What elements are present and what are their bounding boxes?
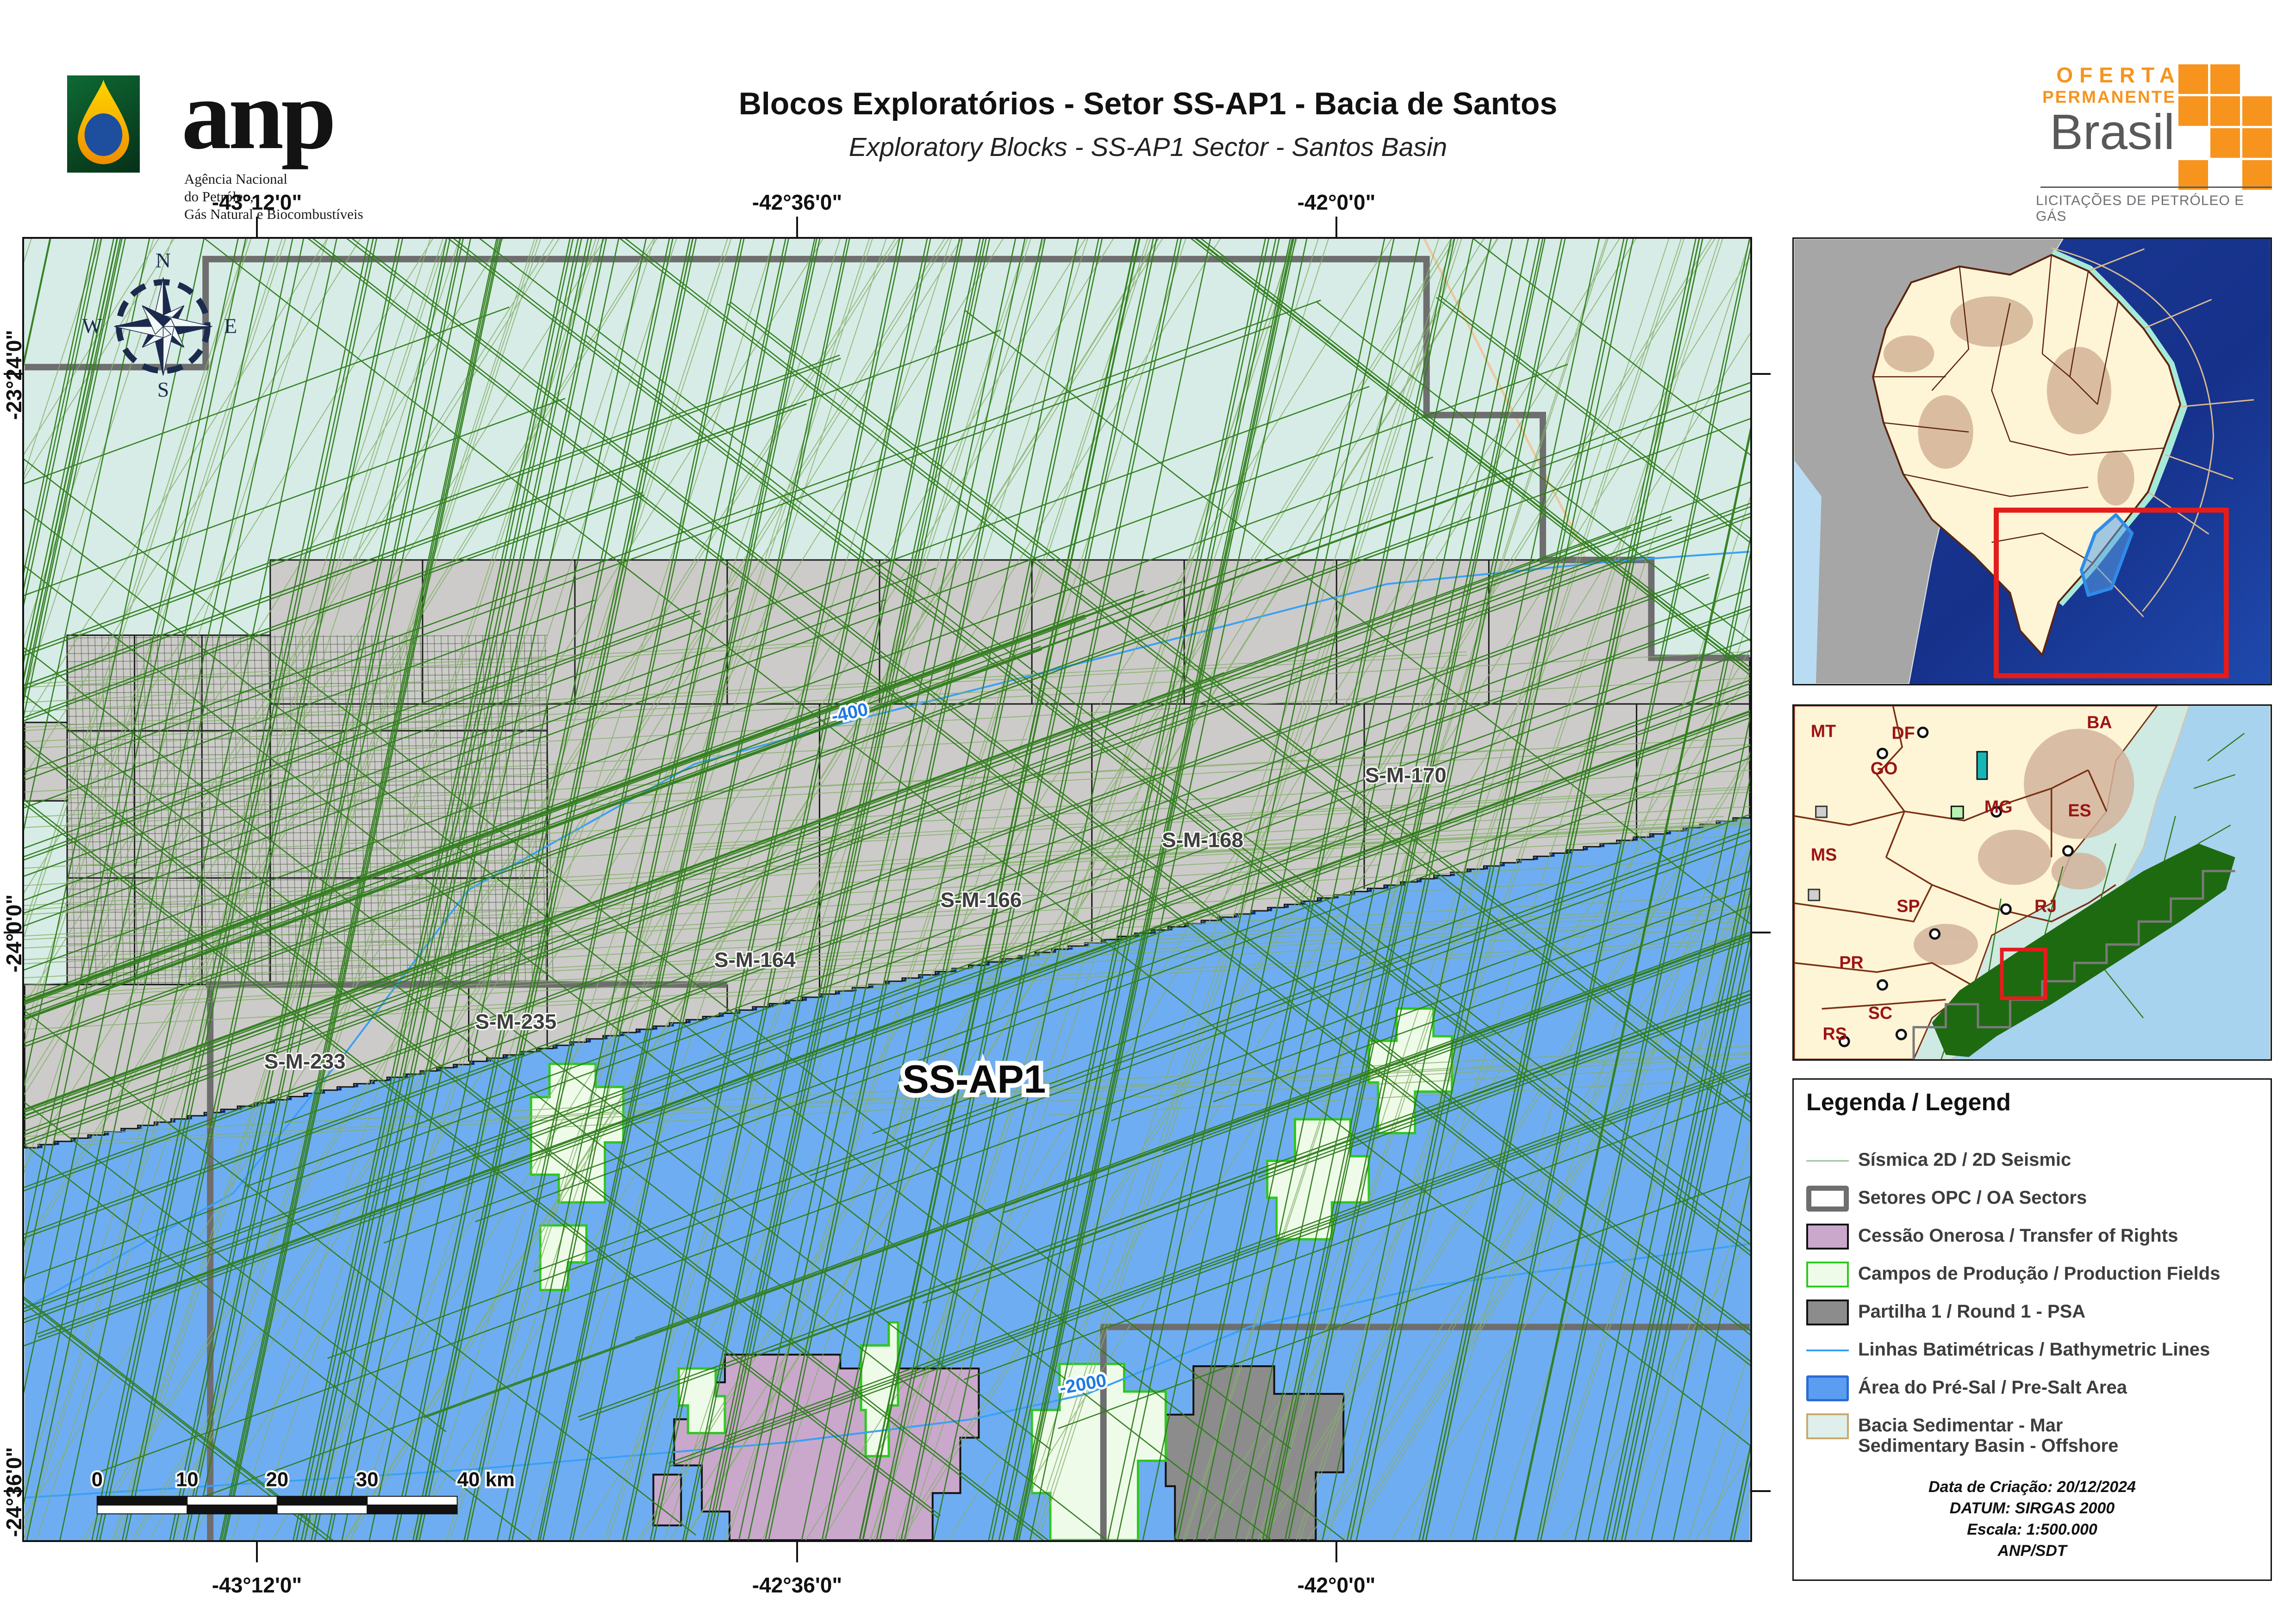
transfer-of-rights-area [653,1474,681,1525]
info-line: ANP/SDT [1806,1540,2258,1561]
longitude-label: -42°0'0" [1244,190,1429,215]
anp-agency-line1: Agência Nacional [184,170,363,188]
rect-presalt-swatch [1806,1375,1849,1401]
legend-item-label: Bacia Sedimentar - MarSedimentary Basin … [1858,1415,2118,1456]
legend-item-label: Cessão Onerosa / Transfer of Rights [1858,1225,2178,1246]
longitude-label: -42°0'0" [1244,1573,1429,1598]
longitude-label: -43°12'0" [164,1573,349,1598]
mosaic-cell [2178,64,2208,94]
mosaic-cell [2210,64,2240,94]
scale-label: 30 [356,1468,379,1491]
block-label: S-M-233 [264,1049,346,1073]
legend-item-label: Sísmica 2D / 2D Seismic [1858,1150,2071,1170]
tick-mark [4,1490,22,1492]
legend-item: Cessão Onerosa / Transfer of Rights [1806,1223,2260,1255]
state-label: MT [1811,721,1836,740]
scale-label: 10 [176,1468,199,1491]
oferta-mosaic-icon [2178,64,2272,190]
mosaic-cell [2242,160,2272,190]
info-line: Data de Criação: 20/12/2024 [1806,1476,2258,1498]
anp-agency-name: Agência Nacional do Petróleo, Gás Natura… [184,170,363,223]
mosaic-cell [2178,128,2208,158]
bathymetric-line-swatch [1806,1349,1849,1351]
mosaic-cell [2210,160,2240,190]
tick-mark [1752,932,1771,933]
longitude-label: -42°36'0" [705,1573,890,1598]
rect-fields-swatch [1806,1262,1849,1287]
block-label: S-M-168 [1162,827,1243,852]
state-label: DF [1891,723,1915,742]
mosaic-cell [2242,96,2272,126]
oferta-brand: Brasil [2040,107,2175,157]
tick-mark [1335,1542,1337,1562]
oferta-rule [2040,187,2272,188]
legend-item-label: Campos de Produção / Production Fields [1858,1263,2220,1284]
seismic-line-swatch [1806,1160,1849,1162]
compass-letter: N [156,249,171,272]
legend-item-label: Área do Pré-Sal / Pre-Salt Area [1858,1377,2127,1398]
compass-letter: S [157,378,169,401]
info-line: Escala: 1:500.000 [1806,1519,2258,1540]
mosaic-cell [2242,128,2272,158]
tick-mark [256,1542,258,1562]
legend-item-label: Linhas Batimétricas / Bathymetric Lines [1858,1339,2210,1360]
tick-mark [4,932,22,933]
legend-item-label: Partilha 1 / Round 1 - PSA [1858,1301,2085,1322]
mosaic-cell [2210,128,2240,158]
oferta-tagline: LICITAÇÕES DE PETRÓLEO E GÁS [2036,193,2277,224]
state-label: SP [1897,896,1920,916]
compass-letter: W [82,314,103,337]
state-label: PR [1839,953,1863,972]
legend-item: Sísmica 2D / 2D Seismic [1806,1147,2260,1179]
legend-item-label: Setores OPC / OA Sectors [1858,1188,2087,1208]
tick-mark [796,1542,798,1562]
main-map: S-M-164S-M-166S-M-168S-M-170S-M-233S-M-2… [22,237,1752,1542]
main-map-canvas: S-M-164S-M-166S-M-168S-M-170S-M-233S-M-2… [24,239,1750,1540]
mosaic-cell [2178,96,2208,126]
state-label: MS [1811,845,1837,864]
mosaic-cell [2242,64,2272,94]
scale-label: 40 km [457,1468,515,1491]
legend-item: Campos de Produção / Production Fields [1806,1261,2260,1293]
rect-basin-swatch [1806,1413,1849,1439]
map-info-block: Data de Criação: 20/12/2024DATUM: SIRGAS… [1806,1476,2258,1561]
legend-item: Bacia Sedimentar - MarSedimentary Basin … [1806,1412,2260,1445]
tick-mark [796,217,798,237]
scale-label: 20 [266,1468,288,1491]
block-label: S-M-166 [940,888,1022,912]
block-label: S-M-235 [475,1009,556,1033]
mosaic-cell [2178,160,2208,190]
rect-psa-swatch [1806,1300,1849,1325]
legend-item-label-2: Sedimentary Basin - Offshore [1858,1436,2118,1456]
anp-wordmark: anp [181,68,334,161]
rect-opc-swatch [1806,1186,1849,1212]
tick-mark [1752,373,1771,375]
anp-drop-icon [67,75,140,173]
longitude-label: -42°36'0" [705,190,890,215]
state-label: SC [1868,1003,1892,1023]
tick-mark [1335,217,1337,237]
anp-agency-line3: Gás Natural e Biocombustíveis [184,205,363,223]
state-label: RJ [2034,896,2057,916]
state-label: GO [1871,759,1898,778]
tick-mark [1752,1490,1771,1492]
legend-item: Partilha 1 / Round 1 - PSA [1806,1299,2260,1331]
tick-mark [4,373,22,375]
sector-label: SS-AP1 [903,1057,1046,1101]
inset-map-region: MTDFGOMGMSSPRJESBAPRSCRS [1792,704,2272,1061]
legend-item: Área do Pré-Sal / Pre-Salt Area [1806,1374,2260,1407]
legend-item: Linhas Batimétricas / Bathymetric Lines [1806,1337,2260,1369]
legend-title: Legenda / Legend [1806,1088,2011,1116]
oferta-line1: OFERTA [2040,62,2181,87]
info-line: DATUM: SIRGAS 2000 [1806,1498,2258,1519]
anp-agency-line2: do Petróleo, [184,188,363,205]
inset-brazil-canvas [1794,239,2271,684]
legend-item: Setores OPC / OA Sectors [1806,1185,2260,1217]
mosaic-cell [2210,96,2240,126]
inset-map-brazil [1792,237,2272,685]
state-label: ES [2068,801,2091,820]
scale-label: 0 [92,1468,103,1491]
page-subtitle: Exploratory Blocks - SS-AP1 Sector - San… [574,132,1722,162]
compass-letter: E [224,314,237,337]
block-label: S-M-170 [1365,763,1447,787]
state-label: MG [1984,797,2013,816]
inset-region-canvas: MTDFGOMGMSSPRJESBAPRSCRS [1794,706,2271,1059]
state-label: RS [1823,1024,1847,1043]
page-title: Blocos Exploratórios - Setor SS-AP1 - Ba… [574,86,1722,122]
anp-logo [67,75,140,173]
rect-transfer-swatch [1806,1224,1849,1250]
state-label: BA [2087,713,2112,732]
block-label: S-M-164 [714,948,796,972]
